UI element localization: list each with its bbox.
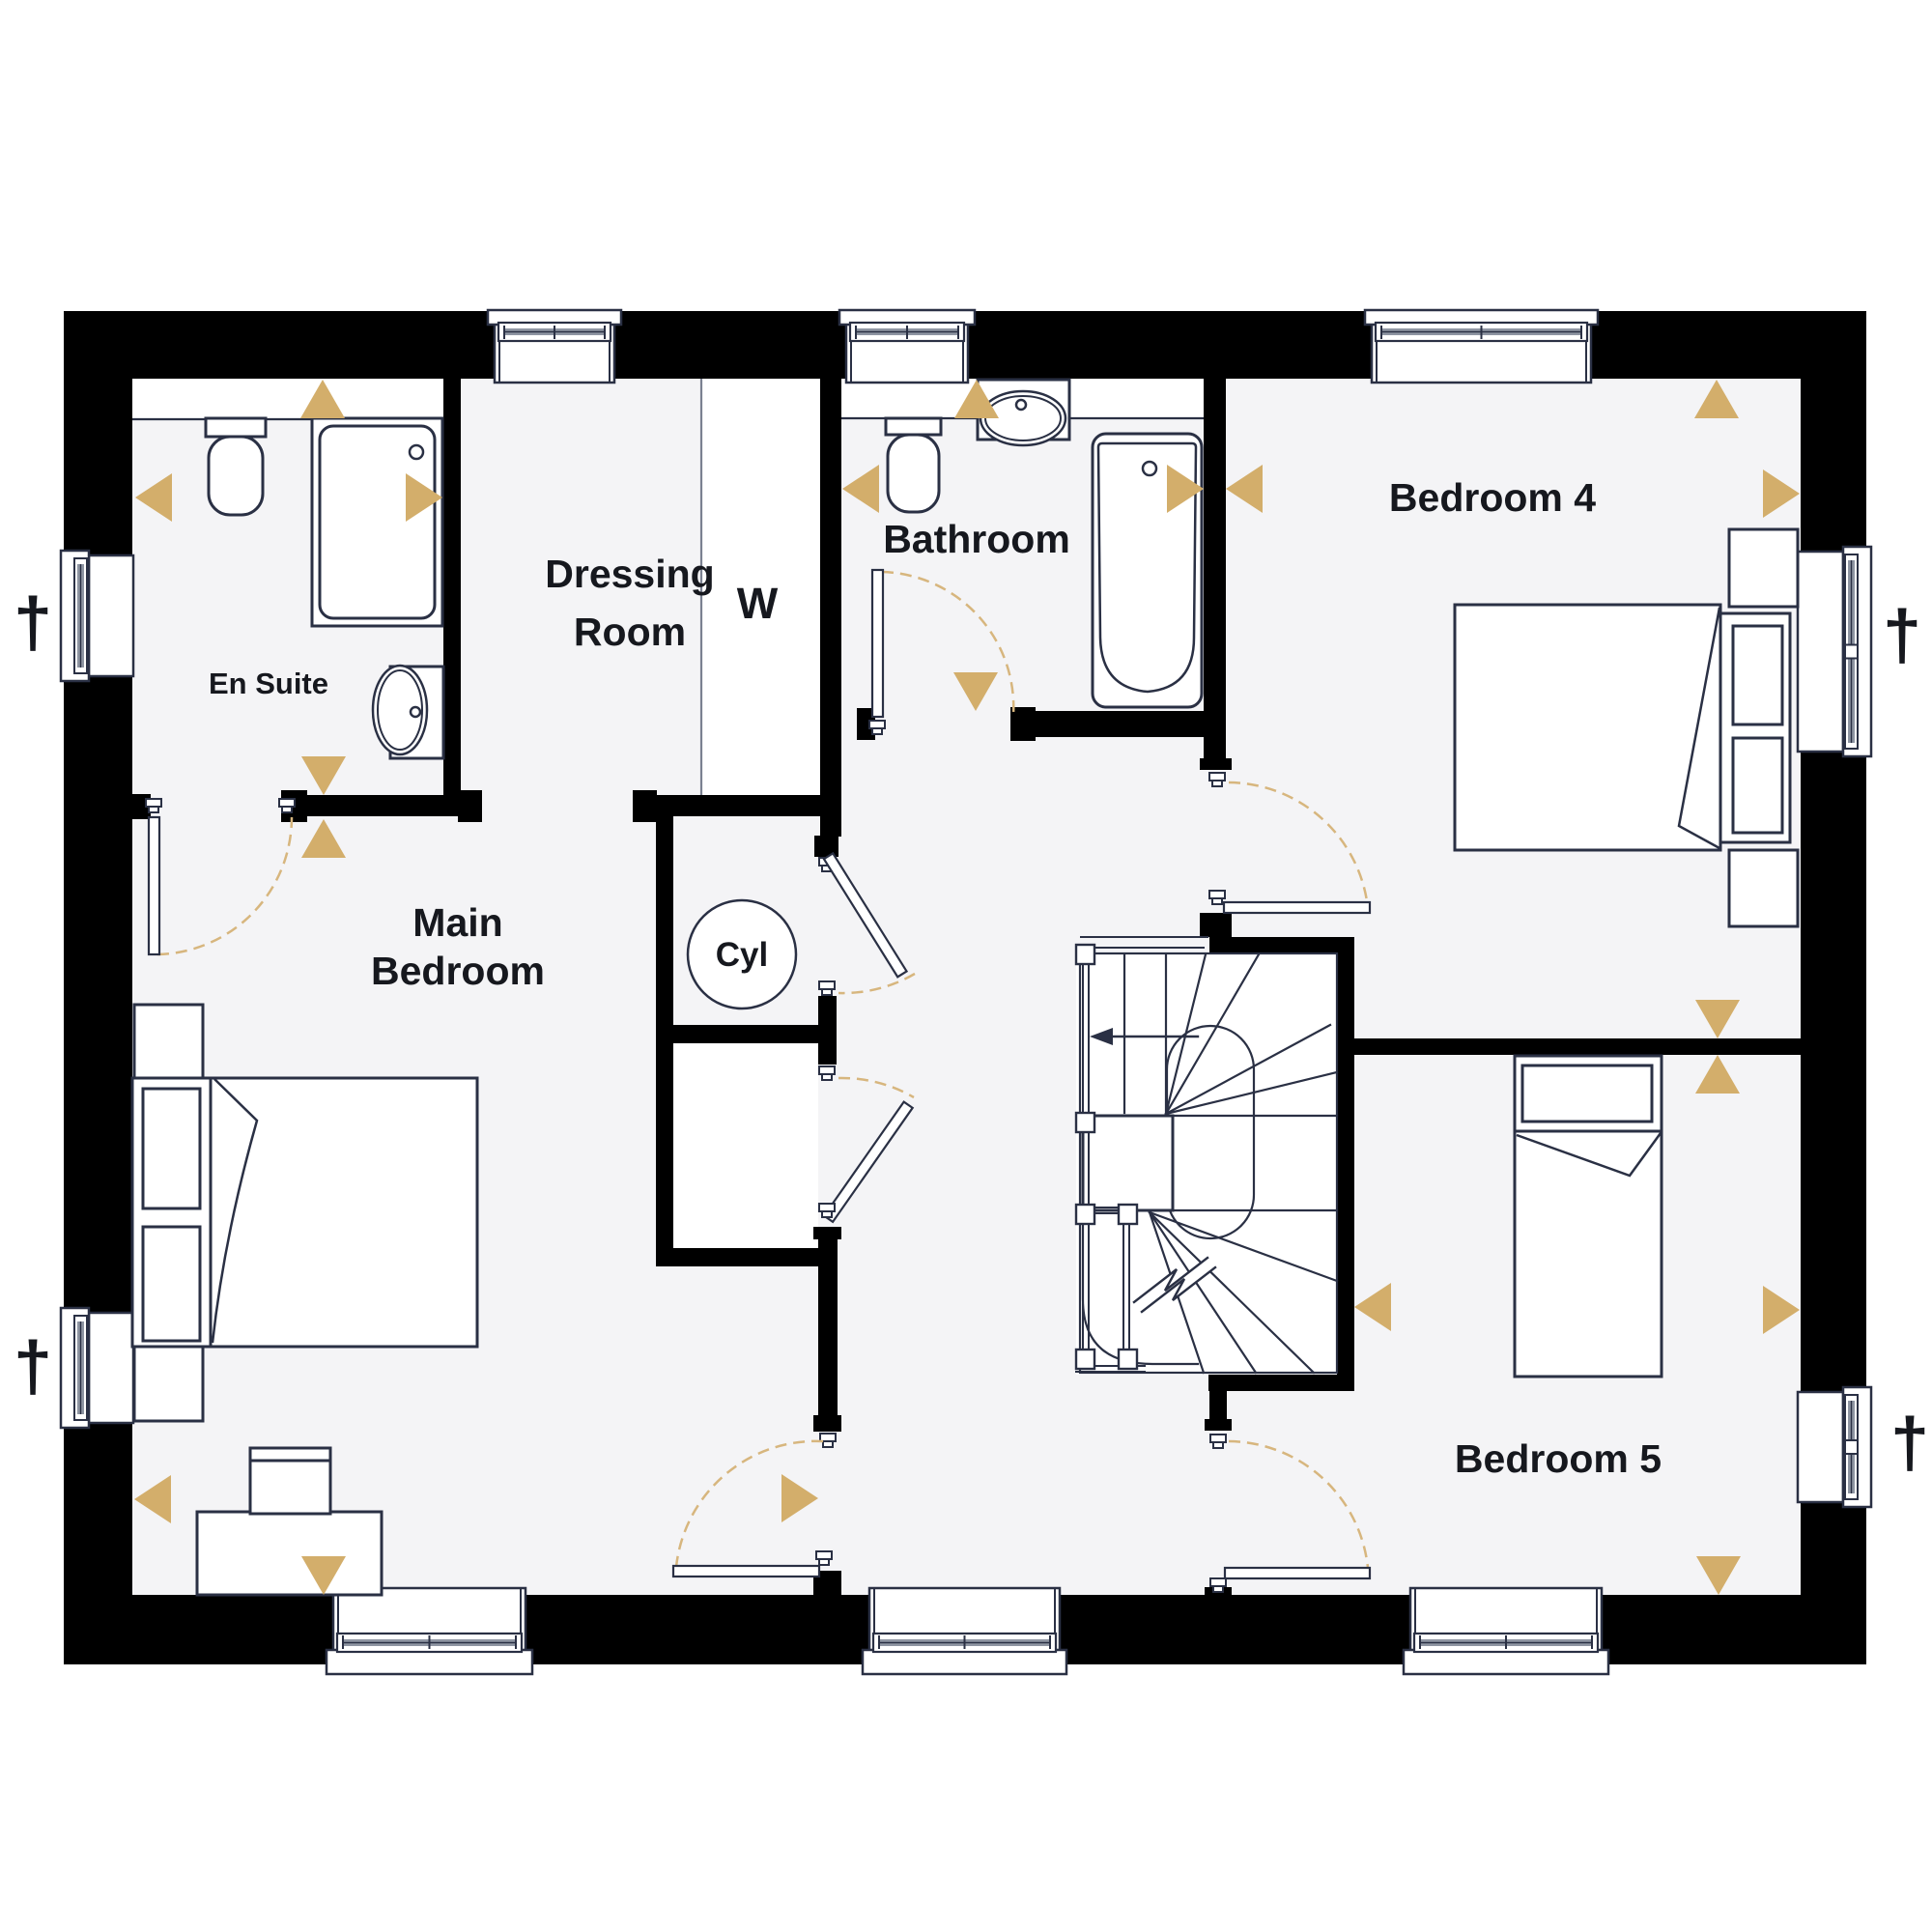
svg-text:Room: Room	[574, 610, 686, 654]
svg-text:Bathroom: Bathroom	[883, 517, 1070, 561]
svg-text:†: †	[1883, 597, 1921, 674]
svg-text:En Suite: En Suite	[209, 667, 328, 700]
svg-text:W: W	[737, 579, 779, 628]
svg-text:Bedroom 5: Bedroom 5	[1455, 1436, 1662, 1481]
svg-text:Dressing: Dressing	[545, 552, 714, 596]
svg-text:Bedroom: Bedroom	[371, 949, 545, 993]
svg-text:Main: Main	[412, 900, 502, 945]
svg-text:Bedroom 4: Bedroom 4	[1389, 475, 1596, 520]
svg-text:†: †	[14, 584, 52, 662]
svg-text:Cyl: Cyl	[716, 936, 768, 974]
svg-text:†: †	[14, 1328, 52, 1406]
svg-text:†: †	[1890, 1405, 1929, 1482]
